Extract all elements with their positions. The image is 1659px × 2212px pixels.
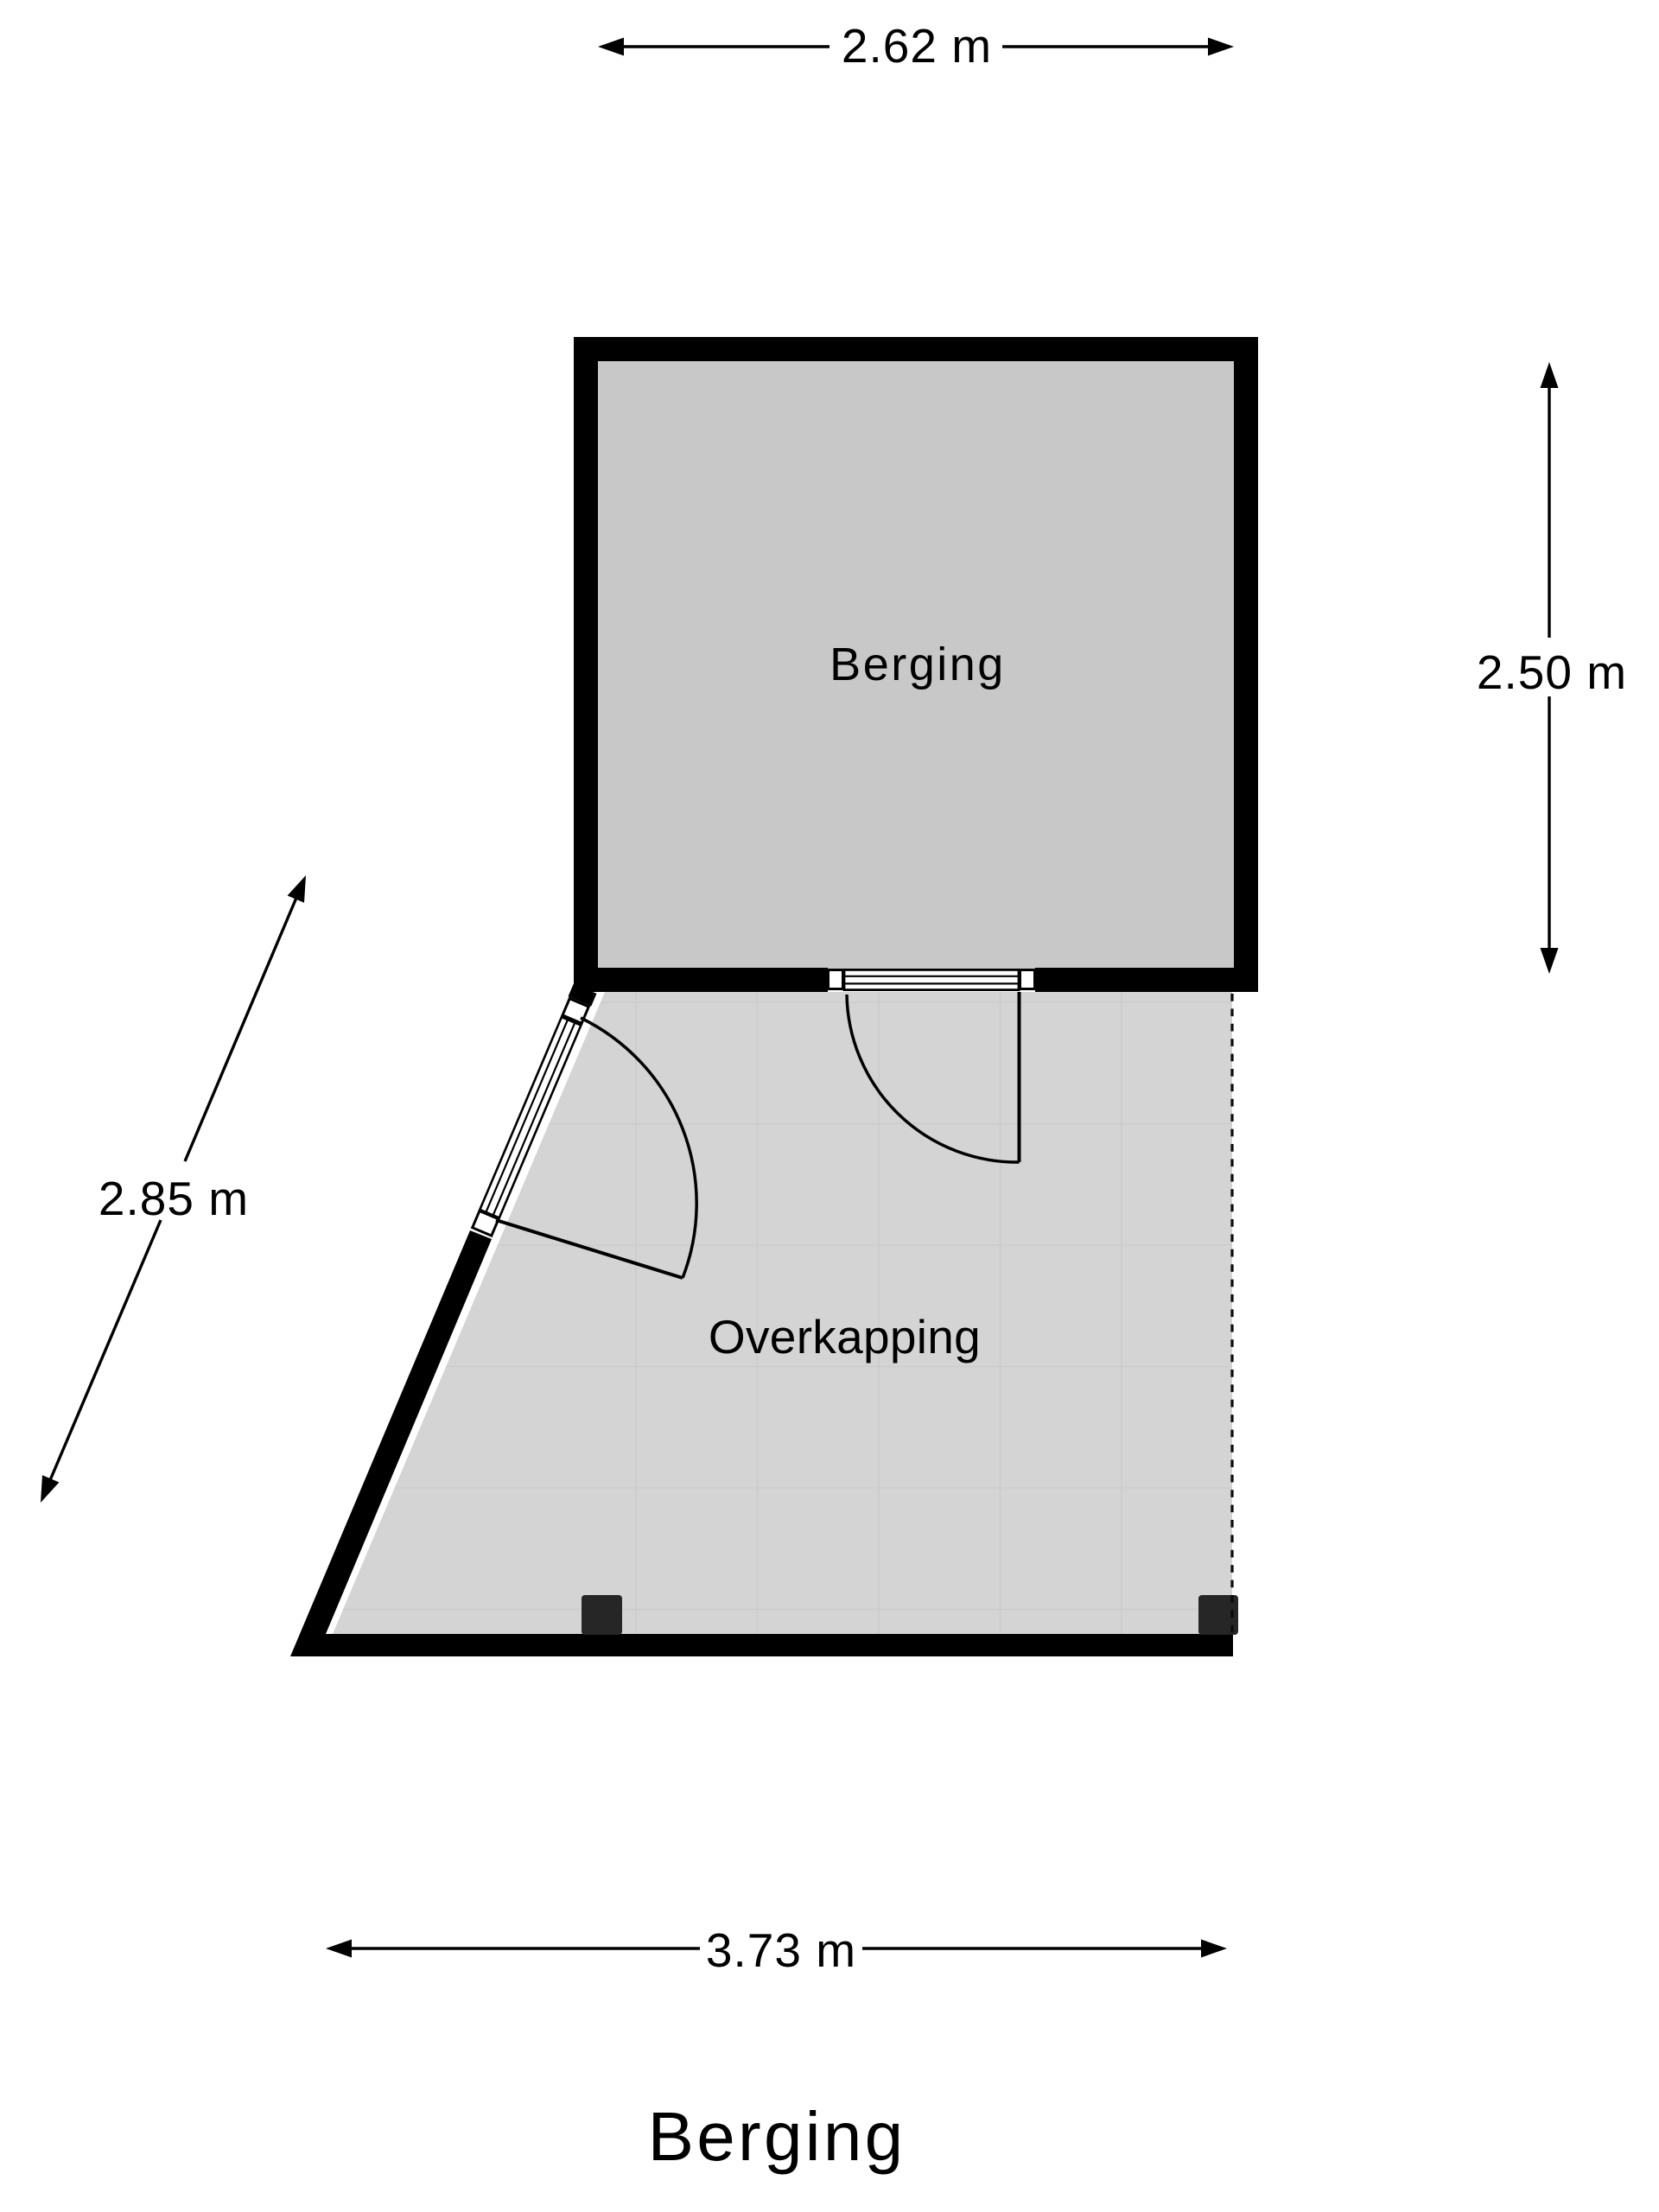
svg-text:Overkapping: Overkapping <box>709 1310 981 1363</box>
svg-text:Berging: Berging <box>648 2098 906 2175</box>
svg-text:Berging: Berging <box>829 639 1006 690</box>
svg-text:2.50 m: 2.50 m <box>1477 645 1627 699</box>
svg-text:2.85 m: 2.85 m <box>99 1172 249 1225</box>
svg-text:2.62 m: 2.62 m <box>842 19 992 73</box>
svg-text:3.73 m: 3.73 m <box>706 1923 856 1977</box>
